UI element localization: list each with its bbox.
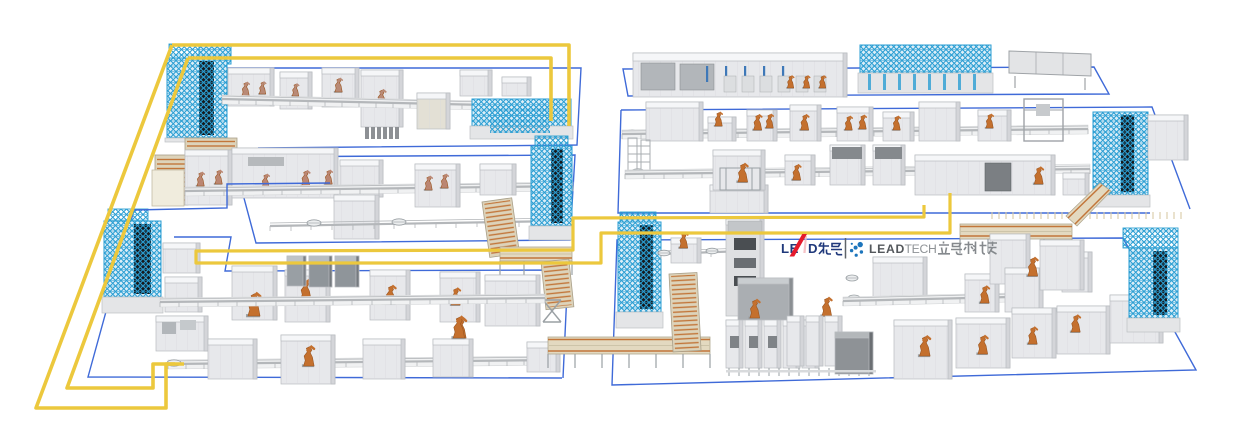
svg-text:LEAD: LEAD — [869, 242, 905, 256]
svg-text:TECH: TECH — [905, 242, 937, 256]
svg-text:D: D — [808, 241, 818, 256]
